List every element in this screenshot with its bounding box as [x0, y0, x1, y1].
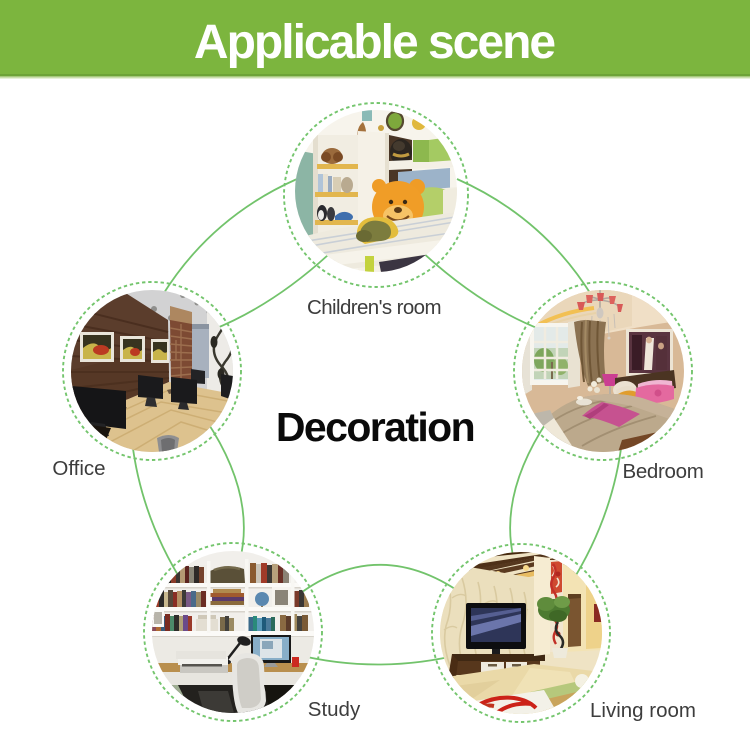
svg-text:Applicable scene: Applicable scene: [194, 16, 555, 69]
svg-text:Office: Office: [52, 457, 105, 480]
svg-text:Decoration: Decoration: [276, 404, 474, 450]
svg-text:Children's room: Children's room: [307, 296, 441, 319]
svg-text:Study: Study: [308, 698, 361, 721]
svg-text:Living room: Living room: [590, 699, 696, 722]
svg-text:Bedroom: Bedroom: [622, 460, 703, 483]
